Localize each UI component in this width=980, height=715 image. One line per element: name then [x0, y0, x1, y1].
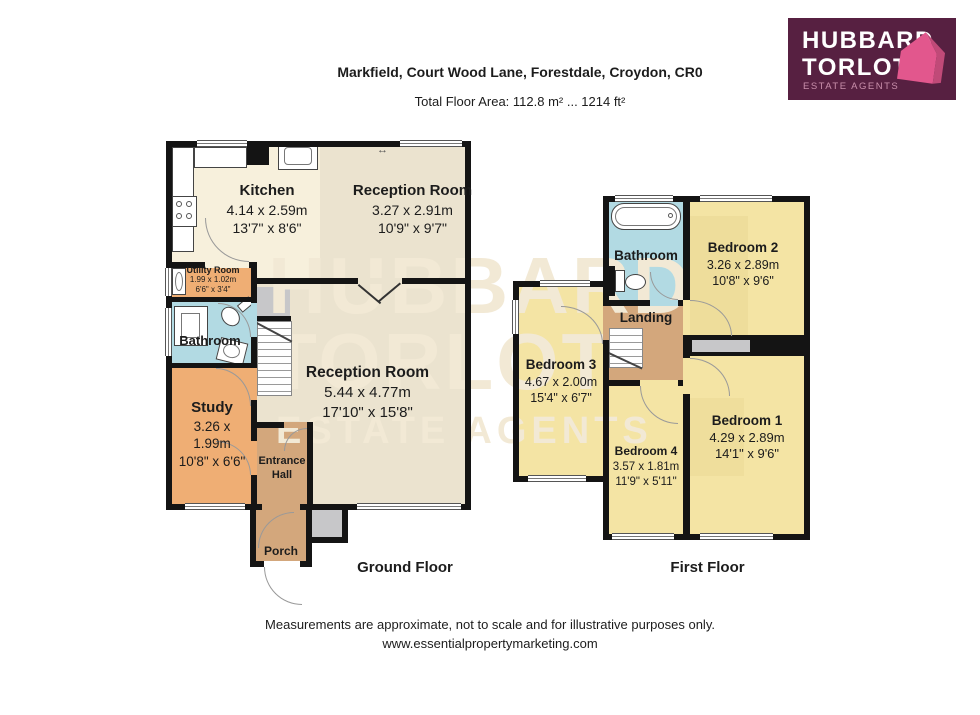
- window: [400, 140, 462, 147]
- wall: [306, 504, 312, 567]
- cupboard: [692, 340, 750, 352]
- wall: [342, 504, 348, 543]
- room-label-reception1: Reception Room 3.27 x 2.91m 10'9" x 9'7": [340, 181, 485, 237]
- room-dim-imperial: 15'4" x 6'7": [517, 390, 605, 406]
- floor-label-ground: Ground Floor: [340, 558, 470, 578]
- room-dim-metric: 3.57 x 1.81m: [606, 460, 686, 475]
- room-label-porch: Porch: [260, 544, 302, 560]
- room-label-bedroom1: Bedroom 1 4.29 x 2.89m 14'1" x 9'6": [685, 412, 809, 463]
- room-name: Study: [174, 398, 250, 418]
- room-dim-metric: 4.67 x 2.00m: [517, 374, 605, 390]
- room-name: Reception Room: [285, 363, 450, 383]
- burner-icon: [176, 213, 182, 219]
- wall: [166, 363, 256, 368]
- door-opening: [262, 504, 300, 510]
- room-dim-metric: 4.14 x 2.59m: [197, 201, 337, 219]
- room-dim-metric: 5.44 x 4.77m: [285, 383, 450, 403]
- window: [357, 503, 461, 510]
- room-name: Kitchen: [197, 181, 337, 201]
- stove: [172, 196, 197, 227]
- wall: [250, 504, 256, 567]
- room-label-bedroom3: Bedroom 3 4.67 x 2.00m 15'4" x 6'7": [517, 356, 605, 406]
- burner-icon: [176, 201, 182, 207]
- room-dim-imperial: 10'8" x 9'6": [683, 273, 803, 289]
- window: [197, 140, 247, 147]
- door-opening: [683, 358, 690, 394]
- house-icon: [892, 27, 952, 92]
- marketing-url: www.essentialpropertymarketing.com: [0, 636, 980, 651]
- window: [528, 475, 586, 482]
- window: [700, 195, 772, 202]
- wall: [603, 266, 615, 296]
- window: [165, 268, 172, 296]
- room-dim-imperial: 11'9" x 5'11": [606, 475, 686, 490]
- wall: [307, 422, 313, 510]
- window: [512, 300, 519, 334]
- window: [612, 533, 674, 540]
- logo-tagline: ESTATE AGENTS: [803, 81, 899, 92]
- toilet-cistern: [615, 270, 625, 292]
- room-dim-imperial: 14'1" x 9'6": [685, 446, 809, 463]
- double-arrow-icon: ↔: [377, 144, 388, 156]
- room-label-entrance-hall: Entrance Hall: [257, 455, 307, 483]
- room-dim-metric: 3.26 x 1.99m: [174, 418, 250, 453]
- room-dim-imperial: 10'9" x 9'7": [340, 219, 485, 237]
- burner-icon: [186, 201, 192, 207]
- wall: [166, 297, 256, 302]
- wall: [804, 196, 810, 540]
- french-door-opening: [358, 278, 402, 284]
- room-label-reception2: Reception Room 5.44 x 4.77m 17'10" x 15'…: [285, 363, 450, 422]
- room-label-study: Study 3.26 x 1.99m 10'8" x 6'6": [174, 398, 250, 470]
- room-label-landing: Landing: [609, 309, 683, 327]
- toilet-bowl: [625, 274, 646, 290]
- door-opening: [251, 368, 257, 400]
- room-label-kitchen: Kitchen 4.14 x 2.59m 13'7" x 8'6": [197, 181, 337, 237]
- room-dim-metric: 3.26 x 2.89m: [683, 257, 803, 273]
- wall: [251, 316, 291, 321]
- sink-basin: [284, 147, 312, 165]
- disclaimer-text: Measurements are approximate, not to sca…: [0, 617, 980, 632]
- room-name: Bedroom 1: [685, 412, 809, 430]
- door-arc: [264, 567, 302, 605]
- window: [540, 280, 590, 287]
- room-dim-metric: 3.27 x 2.91m: [340, 201, 485, 219]
- floor-label-first: First Floor: [645, 558, 770, 578]
- burner-icon: [186, 213, 192, 219]
- room-name: Utility Room: [176, 265, 250, 275]
- wall: [247, 141, 269, 165]
- drain-icon: [668, 213, 673, 218]
- room-dim-imperial: 17'10" x 15'8": [285, 403, 450, 423]
- room-label-bedroom4: Bedroom 4 3.57 x 1.81m 11'9" x 5'11": [606, 444, 686, 489]
- window: [615, 195, 673, 202]
- room-dim-imperial: 13'7" x 8'6": [197, 219, 337, 237]
- door-opening: [284, 422, 307, 428]
- room-name: Bedroom 4: [606, 444, 686, 460]
- room-name: Reception Room: [340, 181, 485, 201]
- room-name: Bedroom 2: [683, 239, 803, 257]
- room-dim-metric: 1.99 x 1.02m: [176, 275, 250, 284]
- room-label-bedroom2: Bedroom 2 3.26 x 2.89m 10'8" x 9'6": [683, 239, 803, 289]
- room-dim-imperial: 6'6" x 3'4": [176, 285, 250, 294]
- room-dim-metric: 4.29 x 2.89m: [685, 430, 809, 447]
- room-name: Bedroom 3: [517, 356, 605, 374]
- room-label-ff-bathroom: Bathroom: [610, 247, 682, 265]
- store-block: [312, 510, 342, 537]
- door-opening: [251, 303, 257, 337]
- window: [185, 503, 245, 510]
- room-label-utility: Utility Room 1.99 x 1.02m 6'6" x 3'4": [176, 265, 250, 294]
- door-opening: [683, 300, 690, 335]
- agency-logo: HUBBARD TORLOT ESTATE AGENTS: [788, 18, 956, 100]
- room-label-gf-bathroom: Bathroom: [174, 333, 246, 350]
- floorplan-page: Markfield, Court Wood Lane, Forestdale, …: [0, 0, 980, 715]
- door-opening: [650, 300, 678, 306]
- window: [700, 533, 773, 540]
- window: [165, 308, 172, 356]
- kitchen-counter: [194, 147, 247, 168]
- room-dim-imperial: 10'8" x 6'6": [174, 453, 250, 471]
